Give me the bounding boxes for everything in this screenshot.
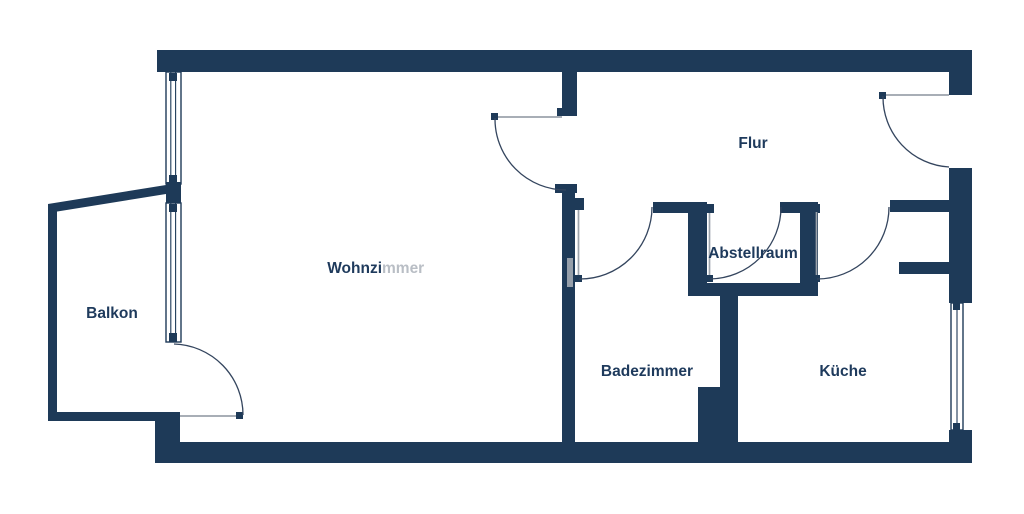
- window-end-cap: [953, 423, 960, 430]
- wall-hall-kitchen: [890, 200, 949, 212]
- room-label-badezimmer: Badezimmer: [601, 363, 693, 380]
- door-hinge-stub: [575, 198, 584, 210]
- wall-storage-west: [688, 202, 707, 296]
- window-band: [166, 203, 181, 342]
- apartment-entrance-door: [879, 92, 949, 167]
- wall-pier: [698, 387, 738, 442]
- door-frame-cap: [557, 108, 575, 116]
- door-swing-arc: [817, 207, 889, 279]
- door-leaf-cap: [236, 412, 243, 419]
- window-end-cap: [169, 175, 177, 183]
- wall-west-balcony-anchor: [166, 182, 181, 203]
- wall-north: [157, 50, 972, 72]
- wall-segment: [562, 190, 575, 442]
- interior-wall-bath-kitchen: [698, 296, 738, 442]
- window-end-cap: [169, 204, 177, 212]
- room-label-wohnzimmer: Wohnzi: [327, 260, 382, 277]
- floor-plan: Wohnzi mmer Balkon Flur Abstellraum Bade…: [0, 0, 1024, 514]
- room-label-wohnzimmer-faded: mmer: [382, 260, 424, 277]
- living-room-window-lower: [166, 203, 181, 342]
- room-label-balkon: Balkon: [86, 305, 138, 322]
- room-label-abstellraum: Abstellraum: [708, 245, 798, 262]
- balcony-railing: [48, 185, 166, 421]
- bathroom-door: [575, 207, 652, 282]
- wall-south: [178, 442, 972, 463]
- door-hinge-cap: [812, 204, 820, 213]
- window-end-cap: [953, 303, 960, 310]
- door-hinge-cap: [706, 204, 714, 213]
- room-label-flur: Flur: [738, 135, 767, 152]
- window-end-cap: [169, 73, 177, 81]
- wall-hall-bath: [653, 202, 689, 213]
- wall-storage-south: [688, 283, 818, 296]
- balcony-rail-top: [48, 185, 166, 213]
- window-end-cap: [169, 333, 177, 342]
- balcony-door: [174, 344, 243, 419]
- door-swing-arc: [710, 207, 781, 279]
- door-swing-arc: [579, 207, 652, 279]
- balcony-rail-south: [48, 412, 158, 421]
- room-label-kueche: Küche: [819, 363, 867, 380]
- door-swing-arc: [495, 118, 566, 190]
- living-room-window-upper: [166, 72, 181, 184]
- door-swing-arc: [883, 96, 949, 167]
- wall-east-middle: [949, 168, 972, 303]
- kitchen-door: [812, 204, 889, 282]
- watermark-artifact: [567, 258, 573, 287]
- window-band: [166, 72, 181, 184]
- wall-kitchen-niche: [899, 262, 949, 274]
- hall-south-walls: [653, 200, 949, 296]
- balcony-rail-west: [48, 204, 57, 421]
- kitchen-window: [951, 303, 963, 430]
- wall-east-upper: [949, 50, 972, 95]
- living-room-hall-door: [491, 113, 566, 190]
- door-swing-arc: [174, 344, 243, 415]
- storage-room-door: [706, 204, 781, 282]
- wall-segment: [720, 296, 738, 387]
- wall-south-west-jog: [155, 412, 180, 463]
- floor-plan-drawing: Wohnzi mmer Balkon Flur Abstellraum Bade…: [0, 0, 1024, 514]
- interior-wall-living-room-east: [555, 72, 584, 442]
